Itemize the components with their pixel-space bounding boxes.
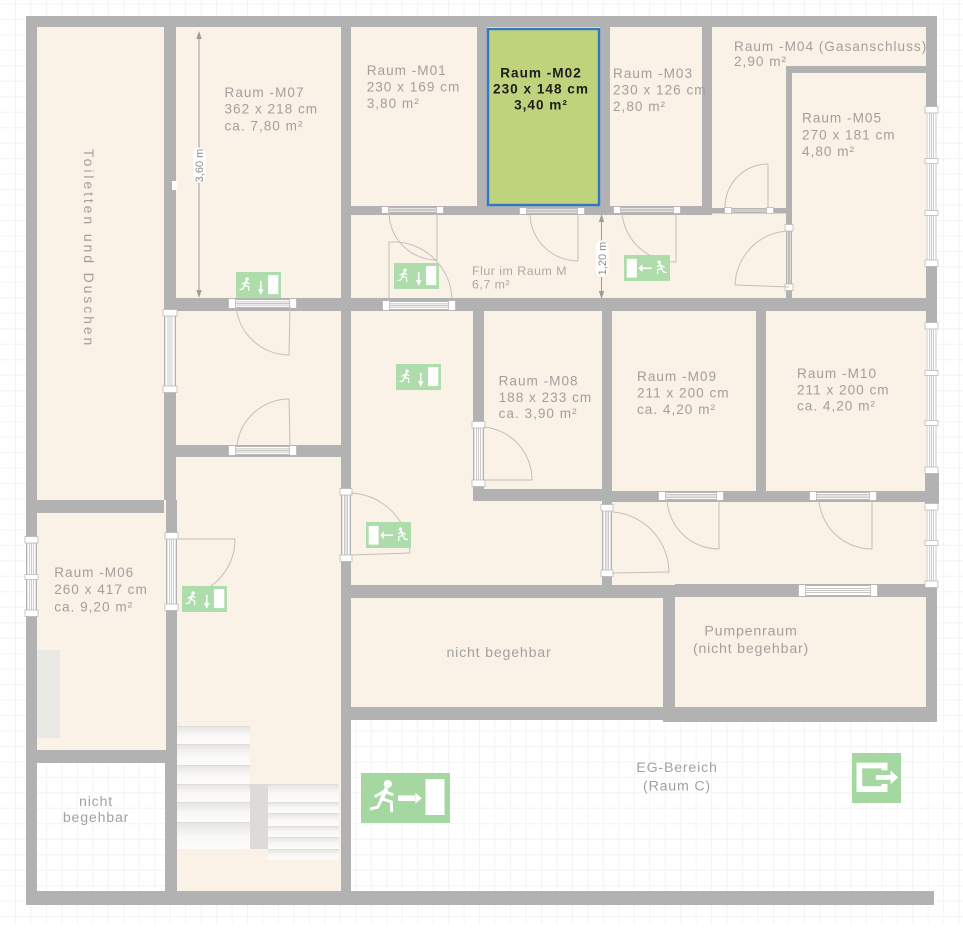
svg-text:260 x 417 cm: 260 x 417 cm	[54, 582, 148, 597]
svg-text:Raum -M10: Raum -M10	[797, 366, 877, 381]
svg-text:230 x 169 cm: 230 x 169 cm	[367, 79, 461, 94]
svg-text:270 x 181 cm: 270 x 181 cm	[802, 127, 896, 142]
svg-text:Raum -M07: Raum -M07	[225, 85, 305, 100]
svg-text:362 x 218 cm: 362 x 218 cm	[225, 102, 319, 117]
svg-text:3,80 m²: 3,80 m²	[367, 96, 420, 111]
svg-text:6,7 m²: 6,7 m²	[472, 278, 510, 292]
svg-text:Raum -M08: Raum -M08	[499, 374, 579, 389]
svg-text:nicht: nicht	[79, 794, 113, 810]
svg-text:188 x 233 cm: 188 x 233 cm	[499, 390, 593, 405]
svg-text:Raum -M01: Raum -M01	[367, 63, 447, 78]
svg-text:230 x 126 cm: 230 x 126 cm	[613, 83, 707, 98]
svg-text:211 x 200 cm: 211 x 200 cm	[797, 382, 890, 397]
svg-text:Raum -M09: Raum -M09	[637, 369, 717, 384]
svg-text:2,80 m²: 2,80 m²	[613, 99, 666, 114]
svg-text:1,20 m: 1,20 m	[597, 242, 609, 276]
svg-text:ca. 3,90 m²: ca. 3,90 m²	[499, 406, 578, 421]
svg-text:Raum -M05: Raum -M05	[802, 111, 882, 126]
svg-text:211 x 200 cm: 211 x 200 cm	[637, 386, 730, 401]
svg-text:2,90 m²: 2,90 m²	[734, 54, 787, 69]
svg-text:ca. 7,80 m²: ca. 7,80 m²	[225, 118, 304, 133]
svg-text:Flur im Raum M: Flur im Raum M	[472, 264, 567, 278]
svg-text:4,80 m²: 4,80 m²	[802, 144, 855, 159]
svg-text:Toiletten und Duschen: Toiletten und Duschen	[81, 149, 97, 348]
svg-text:(Raum C): (Raum C)	[643, 779, 711, 795]
svg-text:230 x 148 cm: 230 x 148 cm	[493, 81, 589, 96]
svg-text:(nicht begehbar): (nicht begehbar)	[693, 641, 809, 657]
svg-text:begehbar: begehbar	[63, 810, 129, 826]
svg-text:3,40 m²: 3,40 m²	[514, 98, 568, 113]
svg-text:Raum -M03: Raum -M03	[613, 66, 693, 81]
svg-text:3,60 m: 3,60 m	[194, 149, 206, 183]
svg-text:Raum -M02: Raum -M02	[500, 65, 582, 80]
svg-text:Raum -M04 (Gasanschluss): Raum -M04 (Gasanschluss)	[734, 39, 927, 54]
svg-text:Raum -M06: Raum -M06	[54, 565, 134, 580]
svg-text:ca. 4,20 m²: ca. 4,20 m²	[637, 402, 716, 417]
svg-text:ca. 4,20 m²: ca. 4,20 m²	[797, 399, 876, 414]
svg-text:ca. 9,20 m²: ca. 9,20 m²	[54, 599, 133, 614]
svg-text:Pumpenraum: Pumpenraum	[704, 624, 797, 640]
svg-text:nicht begehbar: nicht begehbar	[446, 645, 551, 661]
svg-text:EG-Bereich: EG-Bereich	[636, 760, 717, 776]
